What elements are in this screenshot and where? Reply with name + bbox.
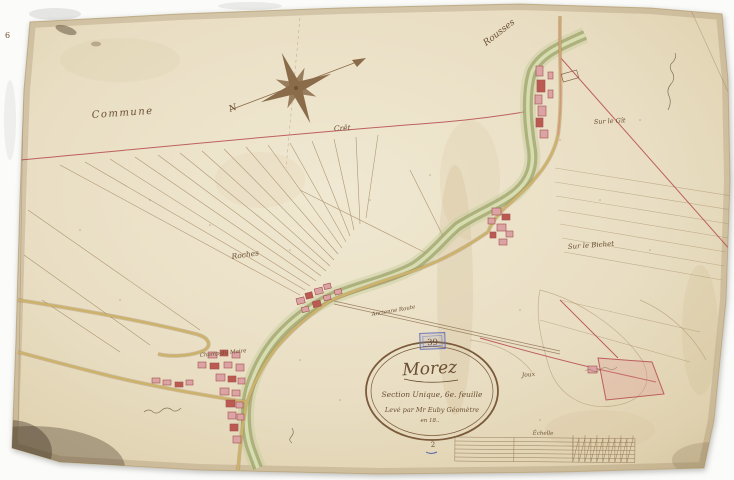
stamp-number: 39 [427, 338, 438, 348]
map-canvas: 6 [0, 0, 734, 480]
sheet-number: 2 [431, 441, 435, 449]
cartouche-title: Morez [401, 358, 459, 381]
map-scan: 6 [0, 0, 734, 480]
label-sur-le-git: Sur le Gît [594, 116, 626, 126]
cartouche-subtitle: Section Unique, 6e. feuille [382, 390, 484, 399]
margin-corner-number: 6 [5, 31, 10, 40]
blue-stamp: 39 [420, 333, 446, 350]
label-cret: Crêt [334, 123, 352, 133]
cartouche-year: en 18.. [420, 418, 439, 424]
scale-title: Échelle [532, 429, 554, 437]
cartouche-surveyor: Levé par Mr Euby Géomètre [384, 406, 479, 414]
label-joux: Joux [520, 371, 536, 379]
